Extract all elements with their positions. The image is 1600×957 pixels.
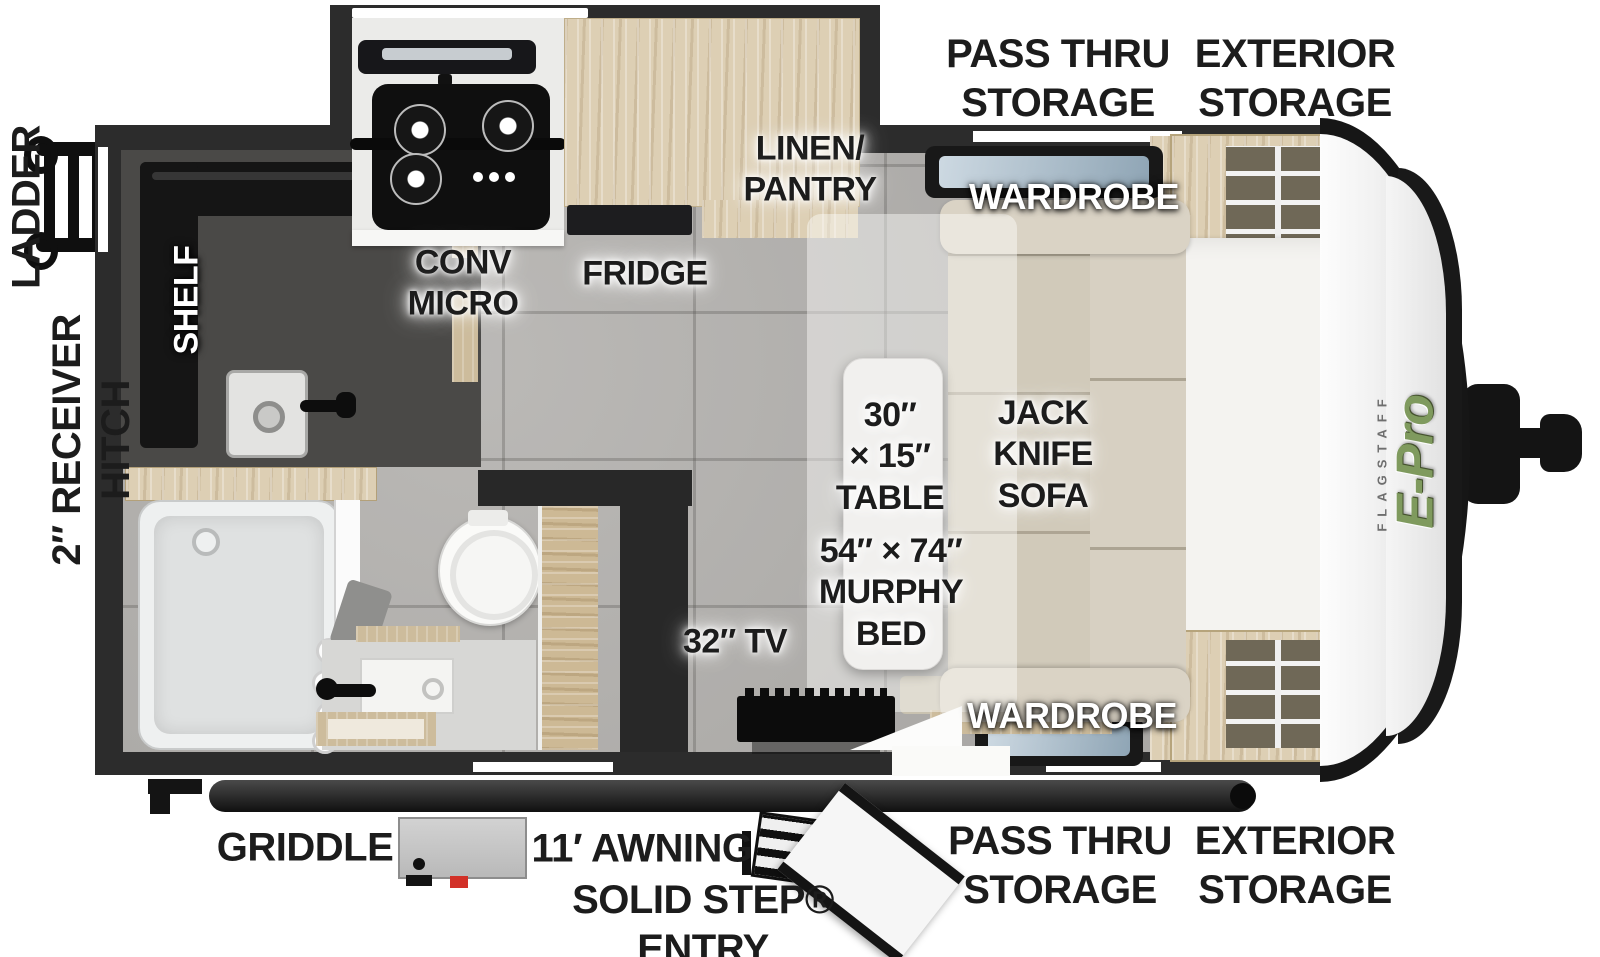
bathtub: [138, 500, 340, 750]
griddle-knob: [413, 858, 425, 870]
wardrobe-bottom-interior: [1226, 640, 1330, 748]
floorplan-canvas: FLAGSTAFF E-Pro SHELF CONV MICRO FRIDGE …: [0, 0, 1600, 957]
toilet-hinge: [468, 510, 508, 526]
griddle-latch: [450, 876, 468, 888]
label-table: 30″ × 15″ TABLE: [836, 395, 944, 519]
rear-sink: [226, 370, 308, 458]
vanity-faucet-handle: [316, 678, 338, 700]
label-conv-micro: CONV MICRO: [408, 243, 519, 326]
bumpout-wall-slot: [352, 8, 588, 18]
sofa-back-cushions: [1090, 208, 1186, 716]
vanity-wood-ledge: [356, 626, 460, 642]
label-linen-pantry: LINEN/ PANTRY: [744, 129, 877, 212]
label-fridge: FRIDGE: [582, 253, 707, 294]
burner: [394, 104, 446, 156]
label-exterior-storage-top: EXTERIOR STORAGE: [1195, 30, 1395, 128]
cooktop-rail: [350, 138, 566, 150]
griddle-foot: [406, 875, 432, 886]
cooktop-knob-dot: [473, 172, 483, 182]
cooktop-knob-dot: [489, 172, 499, 182]
shelf-board: [125, 467, 377, 501]
label-receiver-hitch: 2″ RECEIVER HITCH: [43, 314, 141, 566]
label-shelf: SHELF: [166, 246, 207, 355]
epro-brand-logo: FLAGSTAFF E-Pro: [1375, 332, 1442, 592]
label-tv: 32″ TV: [683, 621, 787, 662]
rear-wall-slot: [98, 147, 108, 252]
hitch-coupler-bar: [1462, 384, 1520, 504]
label-jack-knife-sofa: JACK KNIFE SOFA: [993, 393, 1093, 517]
label-pass-thru-storage-top: PASS THRU STORAGE: [946, 30, 1170, 128]
hitch-ball-knob: [1540, 414, 1582, 472]
label-murphy-bed: 54″ × 74″ MURPHY BED: [819, 531, 963, 655]
tv-32in: [737, 696, 895, 742]
awning-end-cap: [1230, 783, 1256, 809]
entry-door-opening: [892, 746, 1010, 776]
label-solid-step-entry: SOLID STEP® ENTRY: [572, 876, 834, 957]
label-wardrobe-top: WARDROBE: [969, 175, 1179, 219]
epro-wordmark: E-Pro: [1390, 332, 1442, 592]
bathroom-pocket-door: [538, 506, 598, 750]
label-ladder: LADDER: [3, 125, 52, 289]
rear-sink-faucet-handle: [336, 392, 356, 418]
cooktop-knob-dot: [505, 172, 515, 182]
fridge-front: [567, 205, 692, 235]
label-awning: 11′ AWNING: [532, 825, 753, 874]
kitchen-sink-strip: [358, 40, 536, 74]
awning-rail: [209, 780, 1255, 812]
vanity-basin-frame: [316, 712, 436, 746]
tv-wall-vertical: [620, 470, 688, 752]
burner: [390, 153, 442, 205]
burner: [482, 100, 534, 152]
label-griddle: GRIDDLE: [217, 824, 394, 873]
bottom-wall-slot-left: [473, 762, 613, 772]
toilet: [438, 516, 542, 626]
label-wardrobe-bottom: WARDROBE: [967, 694, 1177, 738]
awning-bracket-leg: [150, 792, 170, 814]
label-pass-thru-storage-bottom: PASS THRU STORAGE: [948, 817, 1172, 915]
label-exterior-storage-bottom: EXTERIOR STORAGE: [1195, 817, 1395, 915]
